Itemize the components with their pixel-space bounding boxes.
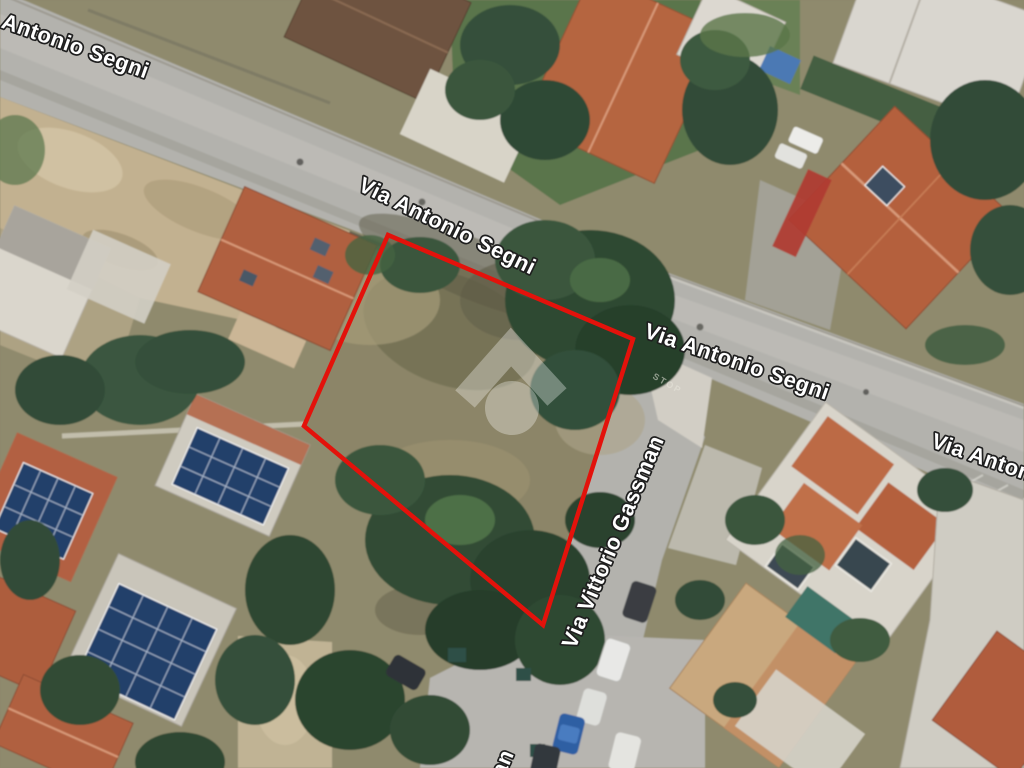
satellite-map[interactable]: STOP Via Antonio Segni Via Antonio Segni… (0, 0, 1024, 768)
satellite-canvas: STOP Via Antonio Segni Via Antonio Segni… (0, 0, 1024, 768)
